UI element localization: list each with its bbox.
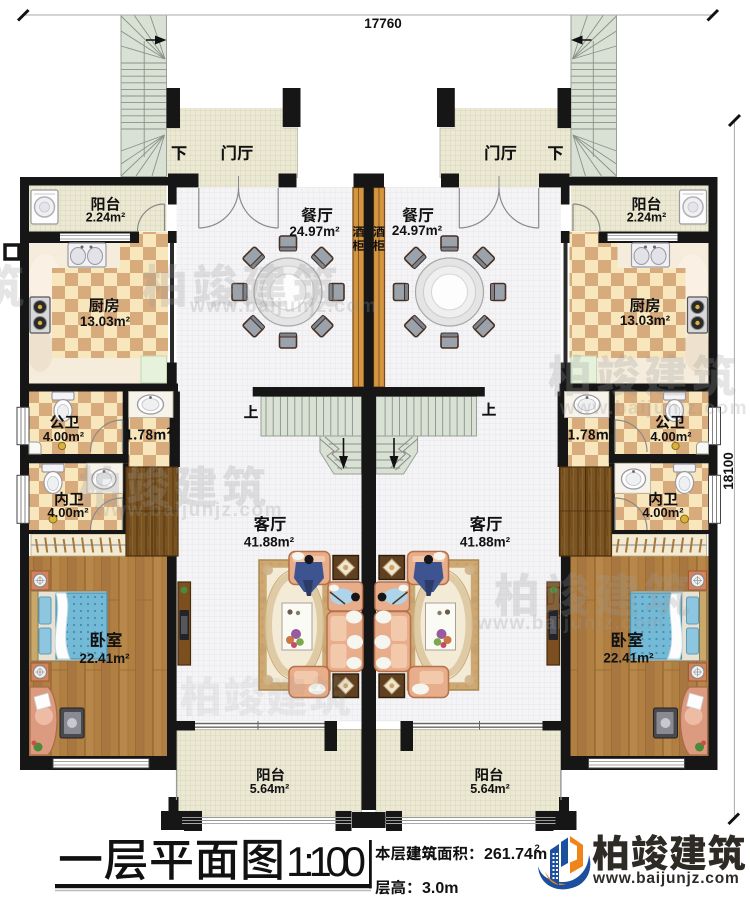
svg-text:13.03m²: 13.03m² (620, 313, 671, 328)
svg-text:24.97m²: 24.97m² (392, 223, 443, 238)
svg-text:1:100: 1:100 (286, 838, 366, 885)
svg-text:4.00m²: 4.00m² (642, 505, 684, 520)
svg-text:www.baijunjz.com: www.baijunjz.com (189, 296, 378, 317)
svg-text:13.03m²: 13.03m² (80, 314, 131, 329)
svg-text:3.0m: 3.0m (422, 880, 458, 897)
svg-text:17760: 17760 (364, 16, 402, 31)
svg-text:4.00m²: 4.00m² (43, 429, 85, 444)
svg-text:4.00m²: 4.00m² (47, 505, 89, 520)
svg-text:2.24m²: 2.24m² (627, 211, 667, 225)
svg-text:22.41m²: 22.41m² (603, 651, 654, 666)
svg-text:22.41m²: 22.41m² (79, 651, 130, 666)
svg-text:2: 2 (535, 843, 540, 854)
svg-text:4.00m²: 4.00m² (650, 429, 692, 444)
svg-text:www.baijunjz.com: www.baijunjz.com (559, 398, 748, 419)
svg-text:41.88m²: 41.88m² (244, 535, 295, 550)
svg-text:www.baijunjz.com: www.baijunjz.com (476, 613, 665, 634)
svg-text:www.baijunjz.com: www.baijunjz.com (592, 870, 740, 887)
svg-text:2.24m²: 2.24m² (86, 211, 126, 225)
svg-text:24.97m²: 24.97m² (289, 224, 340, 239)
svg-text:5.64m²: 5.64m² (470, 782, 510, 796)
svg-text:www.baijunjz.com: www.baijunjz.com (94, 500, 283, 521)
svg-text:18100: 18100 (721, 452, 736, 490)
svg-text:41.88m²: 41.88m² (460, 535, 511, 550)
svg-text:5.64m²: 5.64m² (250, 782, 290, 796)
